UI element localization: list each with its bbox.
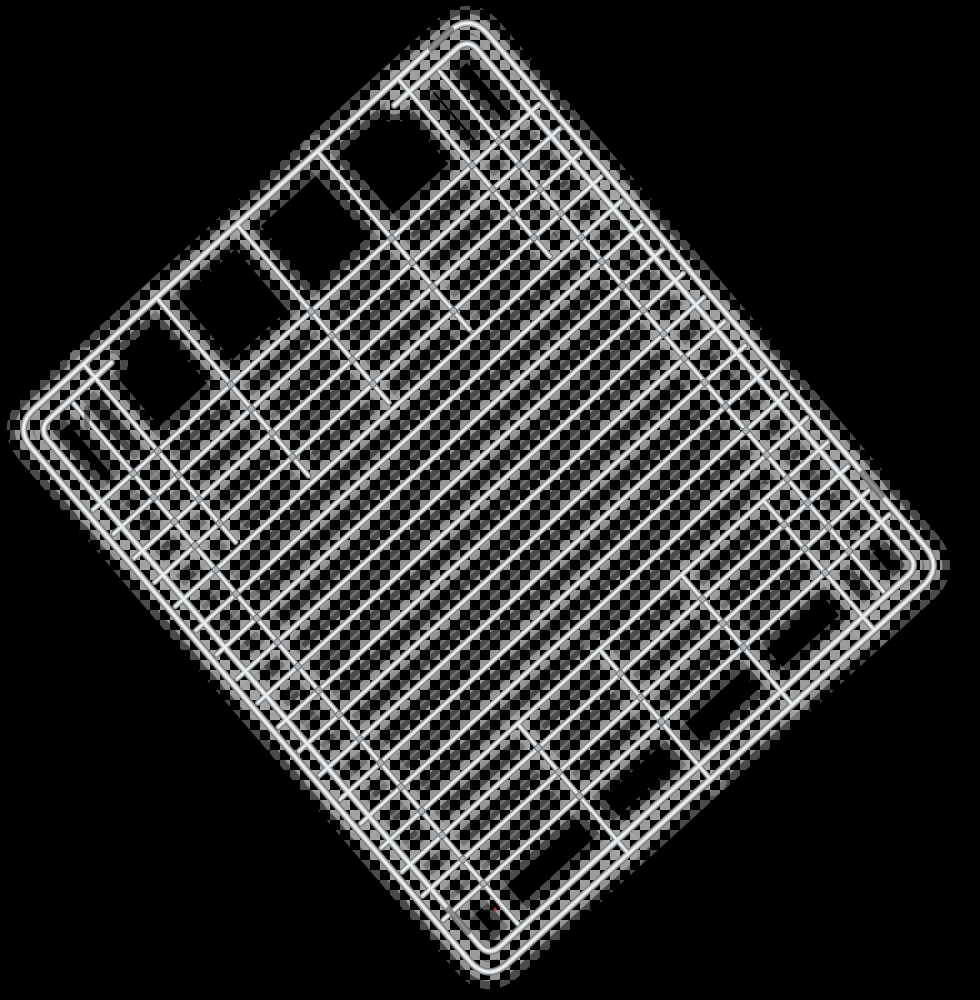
red-speck-artifact (493, 907, 496, 910)
image-canvas (0, 0, 980, 1000)
wire-rack-photo (0, 0, 980, 1000)
